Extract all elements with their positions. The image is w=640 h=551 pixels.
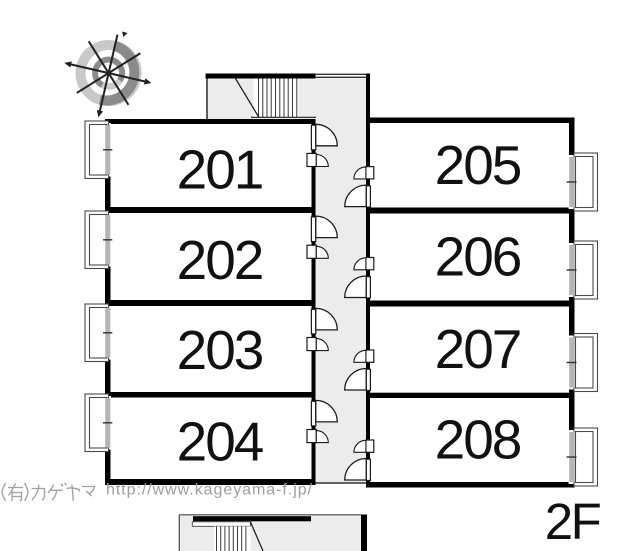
svg-text:202: 202 — [177, 229, 263, 291]
svg-text:http://www.kageyama-f.jp/: http://www.kageyama-f.jp/ — [106, 482, 313, 499]
svg-text:2F: 2F — [545, 493, 601, 550]
svg-text:204: 204 — [177, 411, 263, 473]
svg-text:208: 208 — [435, 409, 521, 471]
svg-text:205: 205 — [435, 134, 521, 196]
svg-text:201: 201 — [177, 139, 263, 201]
svg-text:207: 207 — [435, 318, 521, 380]
svg-text:206: 206 — [435, 226, 521, 288]
svg-text:203: 203 — [177, 319, 263, 381]
